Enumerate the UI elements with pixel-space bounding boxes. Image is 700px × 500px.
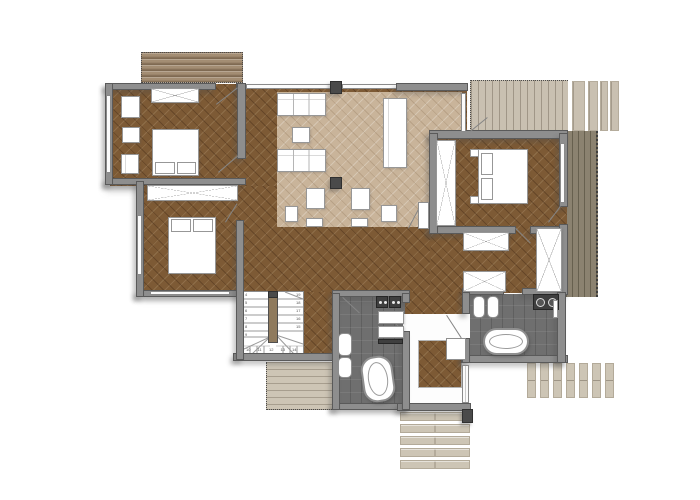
bath-shelf [378, 326, 404, 338]
sofa [277, 93, 326, 116]
wall [429, 130, 568, 139]
south-east-deck-plank [566, 363, 575, 398]
window [150, 291, 230, 295]
bathtub [483, 328, 529, 355]
lounge-chair [306, 188, 325, 209]
window [246, 84, 332, 89]
door-leaf [446, 338, 466, 360]
glass-door [461, 93, 466, 132]
toilet [338, 333, 352, 356]
tall-closet [536, 228, 562, 292]
north-deck [141, 52, 243, 83]
stair-tread-number: 7 [245, 317, 247, 321]
north-east-deck-plank [588, 81, 598, 131]
side-table [381, 205, 397, 222]
stair-tread-number: 15 [296, 325, 300, 329]
window [106, 95, 111, 173]
toilet [473, 296, 485, 318]
south-east-deck-plank [553, 363, 562, 398]
stair-tread-number: 5 [245, 301, 247, 305]
south-east-deck-plank [605, 363, 614, 398]
entry-step [400, 460, 470, 469]
entry-step [400, 424, 470, 433]
coffee-table [292, 127, 310, 143]
stair-tread-number: 9 [245, 333, 247, 337]
stair-tread-number: 16 [296, 317, 300, 321]
bed-pillow [171, 219, 191, 232]
stair-tread-number: 13 [281, 348, 285, 352]
shower-partition [378, 339, 403, 344]
bed-pillow [481, 153, 493, 175]
stair-tread-number: 6 [245, 309, 247, 313]
sofa [277, 149, 326, 172]
entry-step [400, 412, 470, 421]
stair-tread-number: 17 [296, 309, 300, 313]
glass-door [462, 365, 469, 403]
bed-pillow [481, 178, 493, 200]
stair-tread-number: 4 [245, 293, 247, 297]
dresser [121, 96, 140, 118]
washbasin [389, 296, 401, 308]
entry-step [400, 436, 470, 445]
bed-pillow [177, 162, 196, 174]
wardrobe [147, 185, 238, 201]
wall [402, 331, 410, 410]
window [560, 143, 565, 203]
wall [462, 292, 470, 314]
stool [351, 218, 368, 227]
south-east-deck-plank [592, 363, 601, 398]
north-east-deck-plank [572, 81, 585, 131]
floor-plan: 45678919181716151011121314 [0, 0, 700, 500]
window [342, 84, 398, 89]
bath-shelf [378, 311, 404, 324]
bidet [487, 296, 499, 318]
side-table [285, 206, 298, 222]
chest [121, 154, 139, 174]
washbasin [376, 296, 388, 308]
stair-center-rail [268, 291, 278, 343]
closet [463, 271, 506, 292]
stool [306, 218, 323, 227]
south-east-deck-plank [579, 363, 588, 398]
wall [461, 355, 568, 363]
wall-stub [462, 409, 473, 423]
towel-rail [553, 300, 558, 318]
entry-step [400, 448, 470, 457]
bidet [338, 357, 352, 378]
stair-tread-number: 10 [246, 348, 250, 352]
south-deck-by-stairs [266, 362, 338, 410]
stair-tread-number: 14 [292, 348, 296, 352]
bed-pillow [155, 162, 175, 174]
north-east-deck [470, 80, 568, 131]
stair-tread-number: 18 [296, 301, 300, 305]
wall [402, 293, 410, 303]
stair-tread-number: 8 [245, 325, 247, 329]
closet [463, 232, 509, 251]
stair-tread-number: 19 [296, 293, 300, 297]
south-east-deck-plank [527, 363, 536, 398]
wall [233, 353, 333, 361]
east-deck [566, 131, 598, 297]
window [137, 215, 142, 275]
lounge-chair [351, 188, 370, 210]
door-leaf [418, 202, 429, 229]
wall [237, 83, 246, 159]
stair-tread-number: 12 [269, 348, 273, 352]
wardrobe [151, 88, 199, 103]
side-table [122, 127, 140, 143]
wall [105, 178, 246, 185]
stair-rail-post [268, 291, 278, 298]
south-east-deck-plank [540, 363, 549, 398]
bed-pillow [193, 219, 213, 232]
stair-tread-number: 11 [258, 348, 262, 352]
structural-column [330, 177, 342, 189]
north-east-deck-plank [600, 81, 608, 131]
wall [236, 220, 244, 360]
structural-column [330, 81, 342, 94]
dining-table [383, 98, 407, 168]
built-in-closet [436, 140, 456, 226]
wall [396, 83, 468, 91]
north-east-deck-plank [610, 81, 619, 131]
